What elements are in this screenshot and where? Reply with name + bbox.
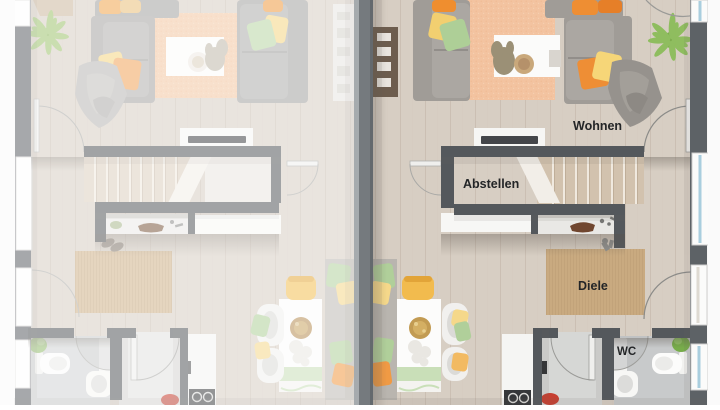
svg-text:Abstellen: Abstellen [463, 177, 519, 191]
svg-text:Wohnen: Wohnen [573, 119, 622, 133]
svg-text:Diele: Diele [578, 279, 608, 293]
svg-text:WC: WC [617, 346, 636, 358]
